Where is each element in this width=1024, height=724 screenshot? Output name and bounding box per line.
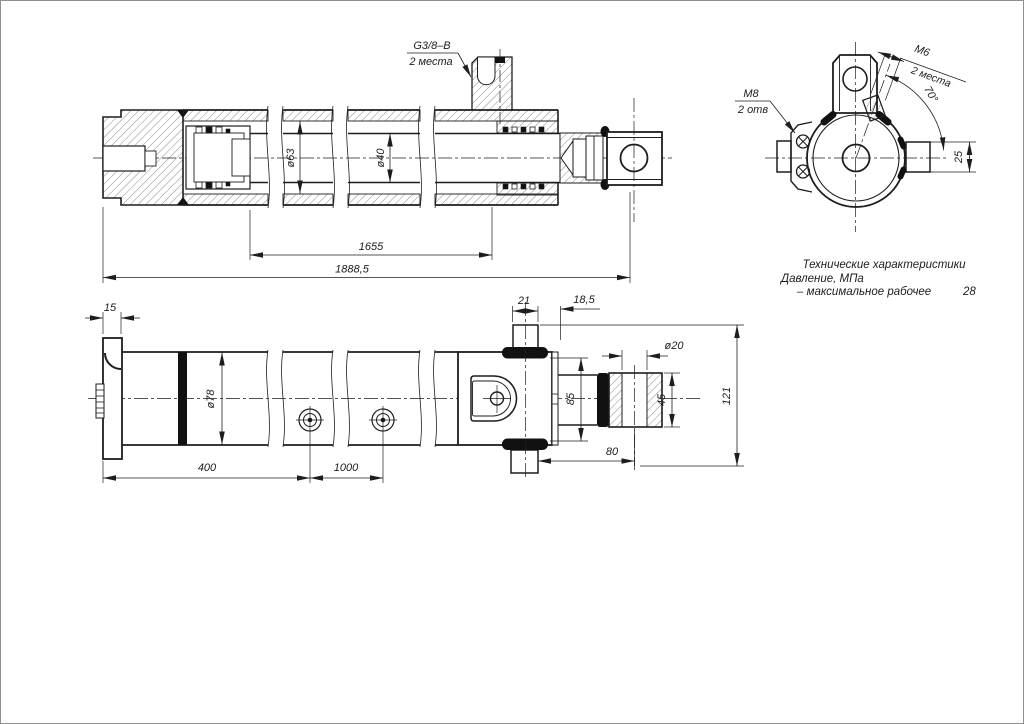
- dim-l2-label: 1000: [334, 462, 359, 474]
- dim-bore-label: ø63: [285, 148, 297, 168]
- specs-title: Технические характеристики: [802, 259, 966, 271]
- port-pad-bottom: [502, 439, 548, 451]
- dim-rod-ext-label: 80: [606, 446, 619, 458]
- weld-band: [178, 352, 187, 445]
- boss-dim-label: 25: [953, 150, 965, 164]
- cap-socket: [103, 146, 145, 171]
- right-boss: [906, 142, 930, 172]
- drawing-sheet: ø63 ø40 1655 1888,5 G3/8–B 2 места: [0, 0, 1024, 724]
- dim-pin-hole-label: ø20: [665, 340, 685, 352]
- dim-l1-label: 400: [198, 462, 217, 474]
- port-places-label: 2 места: [408, 56, 452, 68]
- piston-assembly: [186, 126, 250, 189]
- dim-total-label: 1888,5: [335, 264, 370, 276]
- m8-holes-label: 2 отв: [737, 104, 768, 116]
- drawing-canvas: ø63 ø40 1655 1888,5 G3/8–B 2 места: [0, 0, 1024, 724]
- dim-height-label: 121: [721, 387, 733, 405]
- dim-clevis-label: 45: [656, 393, 668, 406]
- m8-label: M8: [743, 88, 759, 100]
- port-pad-top: [502, 347, 548, 359]
- specs-value: 28: [962, 286, 976, 298]
- dim-stroke-label: 1655: [359, 241, 384, 253]
- specs-param: Давление, МПа: [779, 273, 864, 285]
- port-thread-label: G3/8–B: [413, 40, 450, 52]
- dim-flange-label: 15: [104, 302, 117, 314]
- specs-param-detail: – максимальное рабочее: [796, 286, 931, 298]
- dim-port-off-label: 18,5: [573, 294, 595, 306]
- head-block: [458, 352, 558, 445]
- dim-rod-label: ø40: [375, 148, 387, 168]
- left-boss: [777, 141, 791, 172]
- dim-across-ports-label: 85: [565, 392, 577, 405]
- clevis-weld-ring: [597, 373, 609, 427]
- rod-end-section: [560, 126, 610, 190]
- dim-port-w-label: 21: [517, 295, 530, 307]
- dim-od-label: ø78: [205, 389, 217, 409]
